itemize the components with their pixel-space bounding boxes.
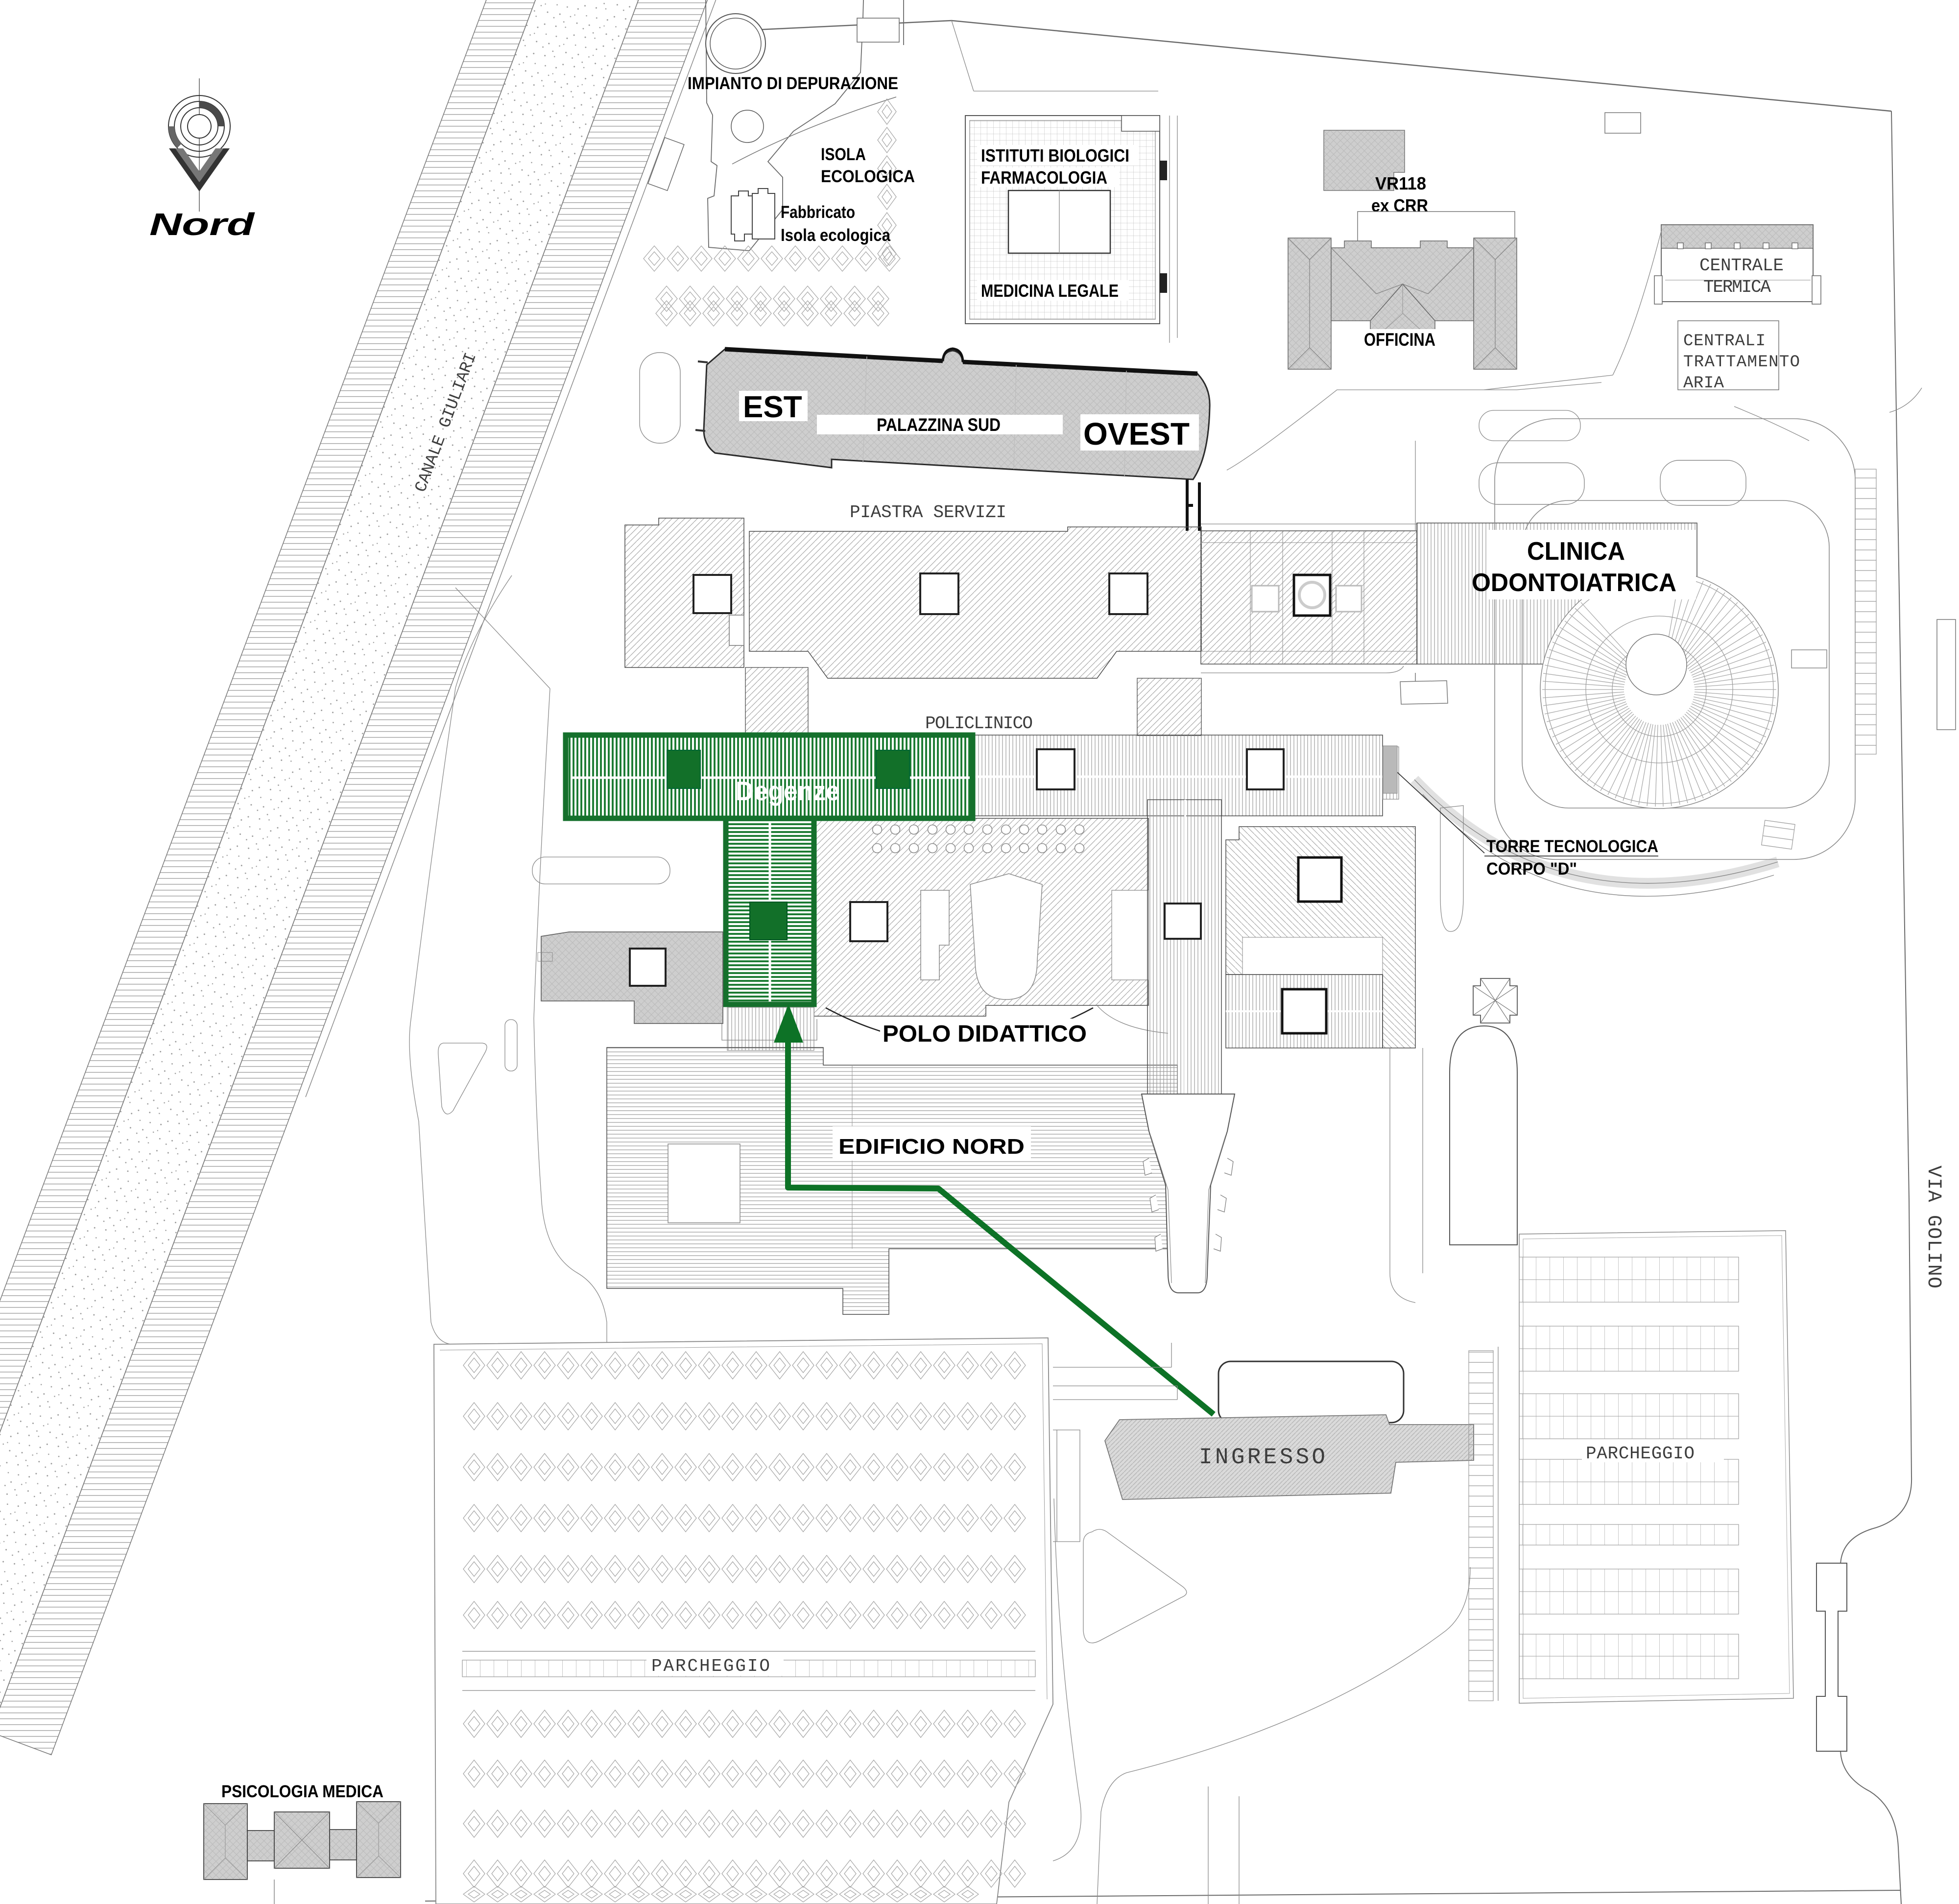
- svg-text:ODONTOIATRICA: ODONTOIATRICA: [1472, 569, 1676, 597]
- svg-text:TORRE TECNOLOGICA: TORRE TECNOLOGICA: [1486, 837, 1658, 856]
- svg-text:INGRESSO: INGRESSO: [1199, 1445, 1332, 1470]
- svg-text:TRATTAMENTO: TRATTAMENTO: [1683, 353, 1801, 372]
- svg-text:VIA GOLINO: VIA GOLINO: [1922, 1166, 1944, 1294]
- svg-text:PARCHEGGIO: PARCHEGGIO: [1586, 1444, 1698, 1464]
- svg-text:FARMACOLOGIA: FARMACOLOGIA: [981, 167, 1107, 188]
- svg-text:TERMICA: TERMICA: [1703, 277, 1773, 297]
- svg-text:VR118: VR118: [1375, 173, 1426, 193]
- svg-text:POLICLINICO: POLICLINICO: [925, 714, 1038, 734]
- svg-text:EST: EST: [743, 390, 802, 424]
- svg-text:PIASTRA SERVIZI: PIASTRA SERVIZI: [850, 502, 1011, 523]
- svg-text:EDIFICIO NORD: EDIFICIO NORD: [838, 1135, 1025, 1159]
- svg-text:PSICOLOGIA MEDICA: PSICOLOGIA MEDICA: [221, 1782, 383, 1801]
- svg-text:IMPIANTO DI DEPURAZIONE: IMPIANTO DI DEPURAZIONE: [688, 74, 898, 93]
- svg-text:CENTRALI: CENTRALI: [1683, 332, 1767, 351]
- svg-text:PARCHEGGIO: PARCHEGGIO: [651, 1656, 774, 1676]
- svg-text:POLO DIDATTICO: POLO DIDATTICO: [883, 1021, 1087, 1047]
- svg-text:Nord: Nord: [149, 207, 256, 242]
- svg-text:ISOLA: ISOLA: [821, 145, 866, 164]
- svg-text:ECOLOGICA: ECOLOGICA: [821, 167, 915, 186]
- svg-text:CLINICA: CLINICA: [1527, 537, 1625, 566]
- svg-text:PALAZZINA SUD: PALAZZINA SUD: [877, 415, 1001, 435]
- svg-text:MEDICINA LEGALE: MEDICINA LEGALE: [981, 281, 1119, 301]
- svg-text:CORPO "D": CORPO "D": [1486, 859, 1577, 879]
- svg-text:OFFICINA: OFFICINA: [1364, 330, 1435, 350]
- svg-text:Isola ecologica: Isola ecologica: [781, 226, 890, 245]
- svg-text:OVEST: OVEST: [1083, 416, 1190, 452]
- svg-text:ARIA: ARIA: [1683, 374, 1725, 393]
- svg-text:ISTITUTI BIOLOGICI: ISTITUTI BIOLOGICI: [981, 145, 1129, 166]
- svg-text:Fabbricato: Fabbricato: [781, 203, 855, 222]
- svg-text:Degenze: Degenze: [736, 776, 840, 806]
- svg-text:CENTRALE: CENTRALE: [1699, 256, 1786, 276]
